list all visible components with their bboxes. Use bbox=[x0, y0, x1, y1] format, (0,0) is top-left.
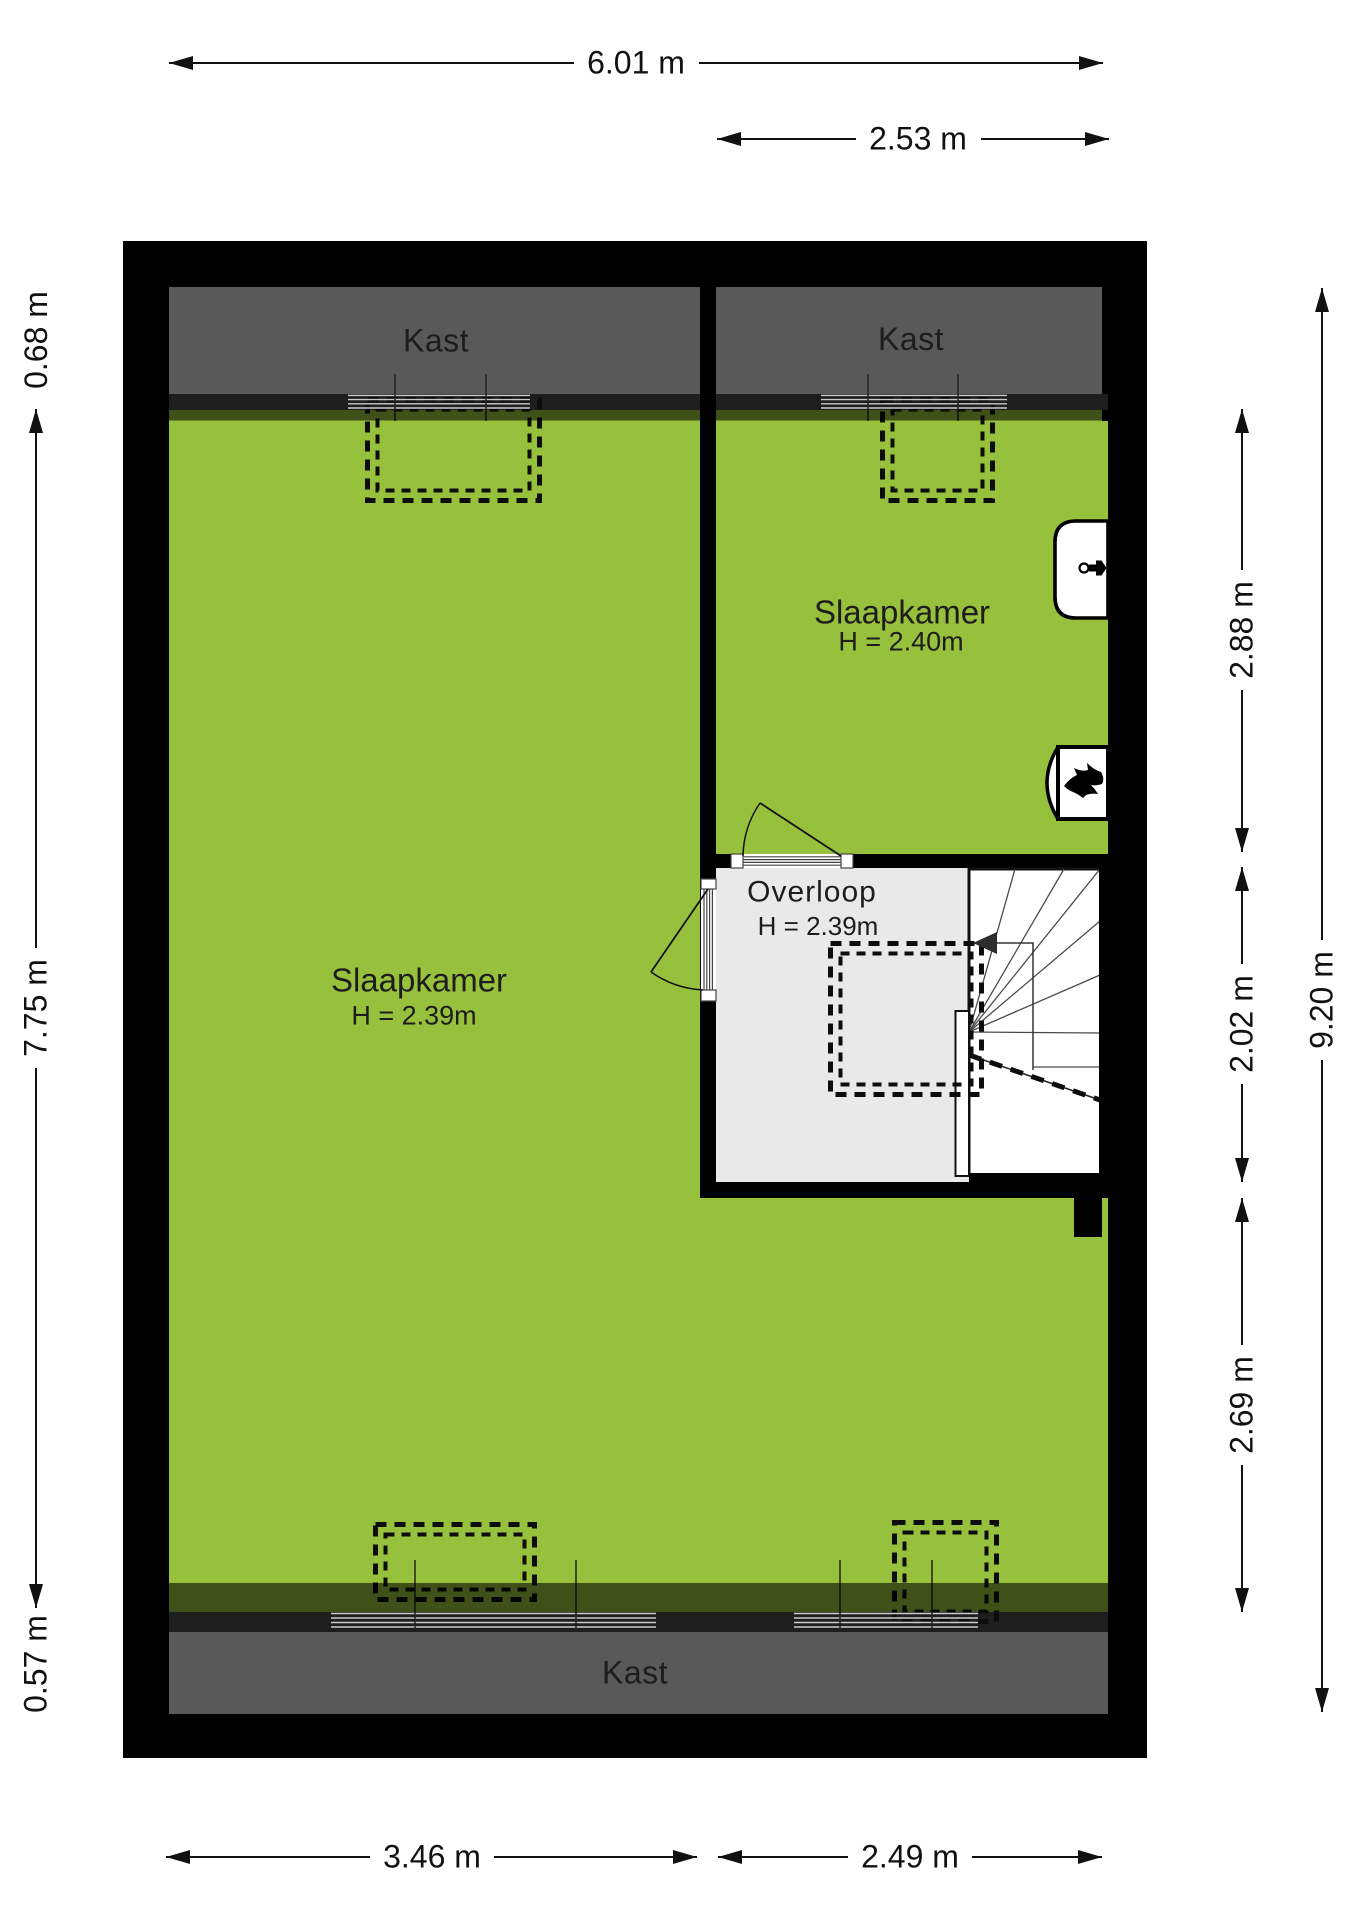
svg-text:H = 2.39m: H = 2.39m bbox=[351, 1001, 476, 1031]
svg-text:Slaapkamer: Slaapkamer bbox=[814, 594, 990, 631]
svg-text:Overloop: Overloop bbox=[747, 876, 877, 909]
svg-text:H = 2.40m: H = 2.40m bbox=[838, 627, 963, 657]
svg-text:Kast: Kast bbox=[878, 321, 944, 357]
svg-text:0.68 m: 0.68 m bbox=[18, 291, 54, 389]
svg-text:Slaapkamer: Slaapkamer bbox=[331, 962, 507, 999]
svg-text:2.88 m: 2.88 m bbox=[1224, 581, 1260, 679]
svg-text:2.69 m: 2.69 m bbox=[1224, 1356, 1260, 1454]
svg-text:2.02 m: 2.02 m bbox=[1224, 975, 1260, 1073]
svg-text:7.75 m: 7.75 m bbox=[18, 959, 54, 1057]
svg-text:Kast: Kast bbox=[403, 323, 469, 359]
svg-text:9.20 m: 9.20 m bbox=[1304, 951, 1340, 1049]
svg-text:3.46 m: 3.46 m bbox=[383, 1839, 481, 1875]
svg-text:H = 2.39m: H = 2.39m bbox=[758, 911, 879, 941]
svg-text:Kast: Kast bbox=[602, 1655, 668, 1691]
svg-text:6.01 m: 6.01 m bbox=[587, 45, 685, 81]
svg-text:2.49 m: 2.49 m bbox=[861, 1839, 959, 1875]
svg-text:0.57 m: 0.57 m bbox=[18, 1615, 54, 1713]
svg-text:2.53 m: 2.53 m bbox=[869, 121, 967, 157]
